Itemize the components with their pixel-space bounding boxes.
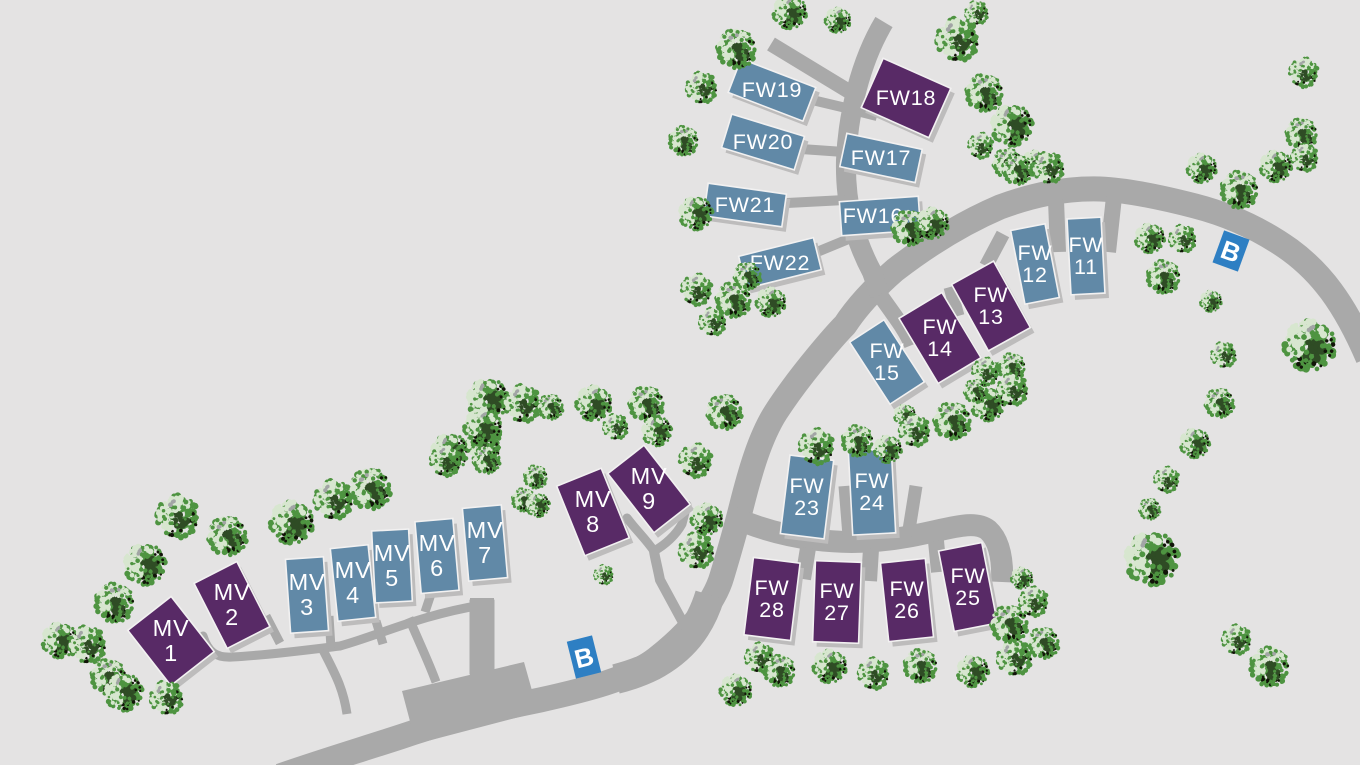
svg-text:9: 9 — [642, 488, 656, 514]
svg-text:MV: MV — [631, 463, 668, 489]
svg-text:MV: MV — [289, 569, 326, 595]
svg-text:FW22: FW22 — [750, 251, 811, 275]
svg-text:23: 23 — [794, 496, 820, 520]
svg-text:MV: MV — [153, 615, 190, 641]
svg-text:FW20: FW20 — [733, 130, 794, 154]
svg-text:13: 13 — [978, 305, 1004, 329]
svg-text:FW: FW — [1068, 233, 1103, 257]
svg-text:26: 26 — [894, 599, 920, 623]
svg-text:27: 27 — [824, 601, 850, 625]
svg-text:7: 7 — [478, 542, 492, 568]
svg-text:11: 11 — [1074, 255, 1098, 279]
svg-text:FW: FW — [973, 283, 1008, 307]
svg-text:6: 6 — [430, 555, 444, 581]
svg-text:FW: FW — [869, 339, 904, 363]
svg-text:2: 2 — [225, 604, 239, 630]
svg-text:1: 1 — [164, 640, 178, 666]
svg-text:8: 8 — [586, 511, 600, 537]
svg-text:28: 28 — [759, 598, 785, 622]
svg-text:15: 15 — [874, 361, 900, 385]
svg-text:MV: MV — [374, 540, 411, 566]
svg-text:FW: FW — [1017, 241, 1052, 265]
svg-text:4: 4 — [346, 582, 360, 608]
svg-text:5: 5 — [385, 565, 399, 591]
svg-text:MV: MV — [575, 486, 612, 512]
svg-text:12: 12 — [1022, 263, 1048, 287]
svg-text:MV: MV — [467, 517, 504, 543]
svg-text:FW17: FW17 — [851, 146, 912, 170]
svg-text:FW: FW — [889, 577, 924, 601]
svg-text:FW18: FW18 — [876, 86, 937, 110]
svg-text:FW: FW — [950, 564, 985, 588]
svg-text:FW: FW — [854, 469, 889, 493]
svg-text:MV: MV — [335, 557, 372, 583]
svg-text:MV: MV — [419, 530, 456, 556]
svg-text:MV: MV — [214, 579, 251, 605]
svg-text:3: 3 — [300, 594, 314, 620]
svg-text:24: 24 — [859, 491, 885, 515]
svg-text:14: 14 — [927, 337, 953, 361]
svg-text:FW: FW — [754, 576, 789, 600]
svg-text:FW: FW — [789, 474, 824, 498]
svg-text:FW19: FW19 — [742, 78, 803, 102]
svg-text:25: 25 — [955, 586, 981, 610]
svg-text:FW: FW — [922, 315, 957, 339]
svg-text:FW21: FW21 — [715, 193, 776, 217]
svg-text:FW: FW — [819, 579, 854, 603]
